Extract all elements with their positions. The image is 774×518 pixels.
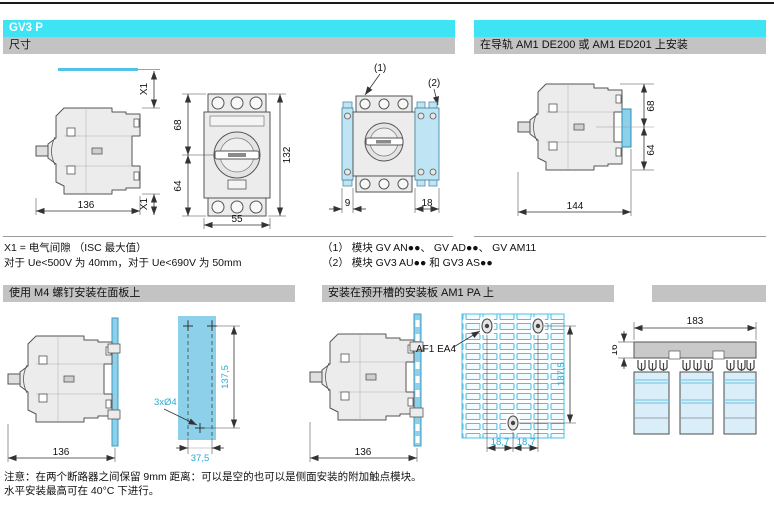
rule-right (474, 236, 766, 237)
top-rule (0, 2, 774, 4)
product-name: GV3 P (9, 22, 43, 34)
dim-x1-bottom: X1 (139, 197, 150, 210)
dim-template-vertical: 137,5 (220, 365, 231, 389)
dim-template-holes: 3xØ4 (154, 397, 177, 408)
terminal-clips (638, 360, 754, 371)
breaker-side-profile (36, 108, 140, 194)
fixing-screw-bottom (506, 414, 520, 432)
group-mounting-drawing: 183 16 (612, 314, 772, 444)
group-mount-section-header (652, 285, 766, 302)
dim-grid-right: 18,7 (517, 437, 536, 448)
dim-front-height: 132 (282, 146, 293, 163)
dim-front-upper: 68 (173, 119, 184, 131)
front-view-modules-drawing: (1) (2) (326, 60, 476, 225)
dim-x1-top: X1 (139, 82, 150, 95)
fixing-screw-top-left (480, 317, 494, 335)
dim-rail-width: 144 (567, 201, 584, 212)
note-line-1: 注意：在两个断路器之间保留 9mm 距离：可以是空的也可以是侧面安装的附加触点模… (4, 470, 422, 484)
panel-mount-side-drawing: 136 (4, 312, 139, 467)
x1-definition: X1 = 电气间隙 （ISC 最大值） (4, 241, 242, 256)
dimensions-title: 尺寸 (9, 39, 31, 51)
x1-footnote: X1 = 电气间隙 （ISC 最大值） 对于 Ue<500V 为 40mm，对于… (4, 241, 242, 271)
dim-module-left-width: 9 (345, 198, 351, 209)
din-rail (622, 109, 631, 147)
catalog-page: GV3 P 尺寸 在导轨 AM1 DE200 或 AM1 ED201 上安装 X… (0, 0, 774, 518)
bottom-note: 注意：在两个断路器之间保留 9mm 距离：可以是空的也可以是侧面安装的附加触点模… (4, 470, 422, 498)
product-header: GV3 P (3, 20, 455, 37)
clearance-reference-line (58, 68, 138, 71)
dim-side-width: 136 (78, 200, 95, 211)
dim-front-width: 55 (231, 214, 243, 225)
rail-mount-side-drawing: 68 64 144 (480, 74, 665, 222)
dim-front-lower: 64 (173, 180, 184, 192)
drilling-template-area (178, 316, 216, 440)
dim-rail-upper: 68 (646, 100, 657, 112)
x1-values: 对于 Ue<500V 为 40mm，对于 Ue<690V 为 50mm (4, 256, 242, 271)
right-add-on-module (415, 102, 439, 186)
perforated-plate-drawing: AF1 EA4 137,5 18,7 18,7 (414, 312, 584, 464)
front-view-drawing: 68 64 132 55 (172, 92, 320, 234)
module-footnote: （1） 模块 GV AN●●、 GV AD●●、 GV AM11 （2） 模块 … (322, 241, 536, 271)
callout-2: (2) (428, 78, 440, 89)
dim-group-width: 183 (687, 316, 704, 327)
fixing-screw-top-right (531, 317, 545, 335)
mounting-panel (112, 318, 118, 446)
panel-mount-title: 使用 M4 螺钉安装在面板上 (9, 287, 140, 299)
dim-module-right-width: 18 (421, 198, 433, 209)
am1pa-side-drawing: 136 (304, 312, 429, 467)
side-view-drawing: X1 136 X1 (8, 62, 168, 220)
plate-mount-section-header: 安装在预开槽的安装板 AM1 PA 上 (322, 285, 614, 302)
plate-mount-title: 安装在预开槽的安装板 AM1 PA 上 (328, 287, 494, 299)
plate-reference: AF1 EA4 (416, 344, 456, 355)
dimensions-section-header: 尺寸 (3, 37, 455, 54)
breaker-side-profile (310, 334, 414, 420)
dim-plate-width: 136 (355, 447, 372, 458)
drilling-template-drawing: 137,5 3xØ4 37,5 (152, 312, 252, 467)
rail-title: 在导轨 AM1 DE200 或 AM1 ED201 上安装 (480, 39, 688, 51)
callout-1: (1) (374, 63, 386, 74)
dim-template-horizontal: 37,5 (191, 453, 210, 464)
dim-comb-height: 16 (612, 344, 620, 356)
dim-grid-vertical: 137,5 (556, 362, 567, 386)
module-note-1: （1） 模块 GV AN●●、 GV AD●●、 GV AM11 (322, 241, 536, 256)
rule-left (3, 236, 453, 237)
rail-section-header: 在导轨 AM1 DE200 或 AM1 ED201 上安装 (474, 37, 766, 54)
note-line-2: 水平安装最高可在 40°C 下进行。 (4, 484, 422, 498)
panel-mount-section-header: 使用 M4 螺钉安装在面板上 (3, 285, 295, 302)
dim-rail-lower: 64 (646, 144, 657, 156)
breaker-side-profile (8, 336, 112, 422)
left-add-on-module (342, 102, 353, 186)
breaker-front-body (353, 96, 415, 192)
dim-grid-left: 18,7 (491, 437, 510, 448)
breaker-bodies (634, 372, 756, 434)
rail-header-accent (474, 20, 766, 37)
busbar-comb (634, 342, 756, 358)
dim-panel-width: 136 (53, 447, 70, 458)
module-note-2: （2） 模块 GV3 AU●● 和 GV3 AS●● (322, 256, 536, 271)
